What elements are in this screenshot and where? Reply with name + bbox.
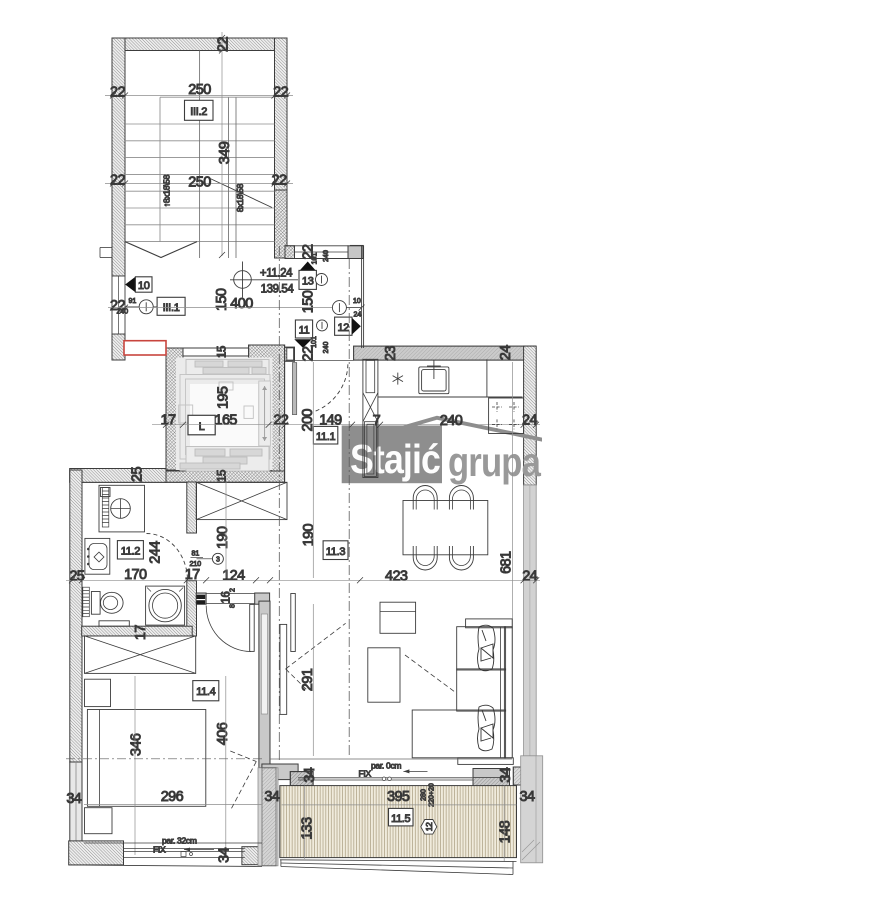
svg-text:22: 22 bbox=[273, 413, 288, 429]
svg-text:17: 17 bbox=[133, 625, 149, 640]
svg-text:8x18\58: 8x18\58 bbox=[235, 183, 245, 212]
svg-text:244: 244 bbox=[147, 541, 163, 564]
svg-text:22: 22 bbox=[273, 85, 288, 101]
svg-text:34: 34 bbox=[302, 767, 318, 782]
svg-text:24: 24 bbox=[522, 569, 537, 585]
svg-text:24: 24 bbox=[354, 311, 362, 318]
svg-text:250: 250 bbox=[188, 82, 211, 98]
svg-text:22: 22 bbox=[110, 85, 125, 101]
svg-text:91: 91 bbox=[129, 298, 137, 305]
svg-text:25: 25 bbox=[69, 568, 84, 584]
svg-text:395: 395 bbox=[387, 789, 410, 805]
svg-text:12: 12 bbox=[424, 822, 434, 831]
svg-text:↑8x18\58: ↑8x18\58 bbox=[162, 174, 172, 207]
svg-text:23: 23 bbox=[383, 346, 399, 361]
svg-text:400: 400 bbox=[230, 296, 253, 312]
svg-text:11.5: 11.5 bbox=[391, 813, 411, 825]
svg-text:11.3: 11.3 bbox=[326, 546, 346, 558]
svg-text:par. 0cm: par. 0cm bbox=[371, 760, 401, 770]
svg-text:17: 17 bbox=[185, 567, 200, 583]
svg-text:+11.24: +11.24 bbox=[260, 268, 293, 280]
svg-text:34: 34 bbox=[217, 847, 233, 862]
svg-text:165: 165 bbox=[214, 413, 237, 429]
svg-text:170: 170 bbox=[124, 567, 147, 583]
svg-text:III.1: III.1 bbox=[163, 302, 180, 314]
svg-text:11.2: 11.2 bbox=[121, 546, 141, 558]
svg-text:11: 11 bbox=[299, 325, 310, 337]
svg-text:34: 34 bbox=[498, 767, 514, 782]
svg-text:3: 3 bbox=[216, 557, 220, 564]
svg-text:2: 2 bbox=[230, 588, 237, 592]
svg-text:III.2: III.2 bbox=[190, 106, 207, 118]
svg-text:148: 148 bbox=[498, 820, 514, 843]
svg-text:17: 17 bbox=[161, 413, 176, 429]
svg-text:7: 7 bbox=[373, 413, 381, 429]
svg-text:10: 10 bbox=[138, 280, 150, 292]
svg-text:22: 22 bbox=[272, 173, 287, 189]
svg-text:349: 349 bbox=[217, 141, 233, 164]
svg-text:220+20: 220+20 bbox=[429, 783, 436, 807]
svg-text:101: 101 bbox=[312, 253, 319, 265]
svg-text:190: 190 bbox=[215, 526, 231, 549]
svg-text:133: 133 bbox=[300, 817, 316, 840]
svg-text:10: 10 bbox=[353, 298, 361, 305]
svg-text:124: 124 bbox=[222, 568, 245, 584]
svg-text:406: 406 bbox=[215, 722, 231, 745]
svg-text:150: 150 bbox=[300, 290, 316, 313]
svg-text:195: 195 bbox=[215, 386, 231, 409]
svg-text:25: 25 bbox=[130, 467, 146, 482]
svg-text:24: 24 bbox=[522, 413, 537, 429]
svg-text:FIX: FIX bbox=[359, 769, 372, 779]
svg-text:346: 346 bbox=[129, 733, 145, 756]
svg-text:240: 240 bbox=[323, 342, 330, 354]
svg-text:81: 81 bbox=[192, 551, 200, 558]
svg-text:190: 190 bbox=[301, 523, 317, 546]
svg-text:280: 280 bbox=[421, 789, 428, 801]
svg-text:8: 8 bbox=[230, 604, 237, 608]
svg-text:15: 15 bbox=[217, 470, 229, 482]
svg-text:101: 101 bbox=[311, 336, 318, 348]
svg-text:11.4: 11.4 bbox=[196, 686, 216, 698]
svg-text:423: 423 bbox=[385, 569, 408, 585]
svg-text:296: 296 bbox=[161, 789, 184, 805]
svg-text:grupa: grupa bbox=[448, 439, 542, 485]
svg-text:34: 34 bbox=[66, 791, 81, 807]
svg-text:240: 240 bbox=[323, 250, 330, 262]
svg-text:250: 250 bbox=[188, 175, 211, 191]
svg-text:240: 240 bbox=[440, 413, 463, 429]
svg-text:FIX: FIX bbox=[153, 845, 166, 855]
svg-text:34: 34 bbox=[264, 789, 279, 805]
svg-text:13: 13 bbox=[302, 275, 314, 287]
svg-text:291: 291 bbox=[300, 668, 316, 691]
svg-text:240: 240 bbox=[117, 309, 129, 316]
svg-text:210: 210 bbox=[190, 561, 202, 568]
svg-text:34: 34 bbox=[520, 789, 535, 805]
svg-text:22: 22 bbox=[216, 37, 232, 52]
svg-text:11.1: 11.1 bbox=[316, 431, 336, 443]
svg-text:15: 15 bbox=[217, 346, 229, 358]
svg-text:12: 12 bbox=[337, 322, 349, 334]
svg-text:Stajić: Stajić bbox=[350, 436, 440, 482]
svg-text:24: 24 bbox=[498, 345, 514, 360]
svg-text:22: 22 bbox=[110, 173, 125, 189]
svg-text:L: L bbox=[199, 421, 205, 433]
svg-text:par. 32cm: par. 32cm bbox=[162, 836, 197, 846]
svg-text:139.54: 139.54 bbox=[261, 284, 295, 296]
svg-text:681: 681 bbox=[498, 551, 514, 574]
